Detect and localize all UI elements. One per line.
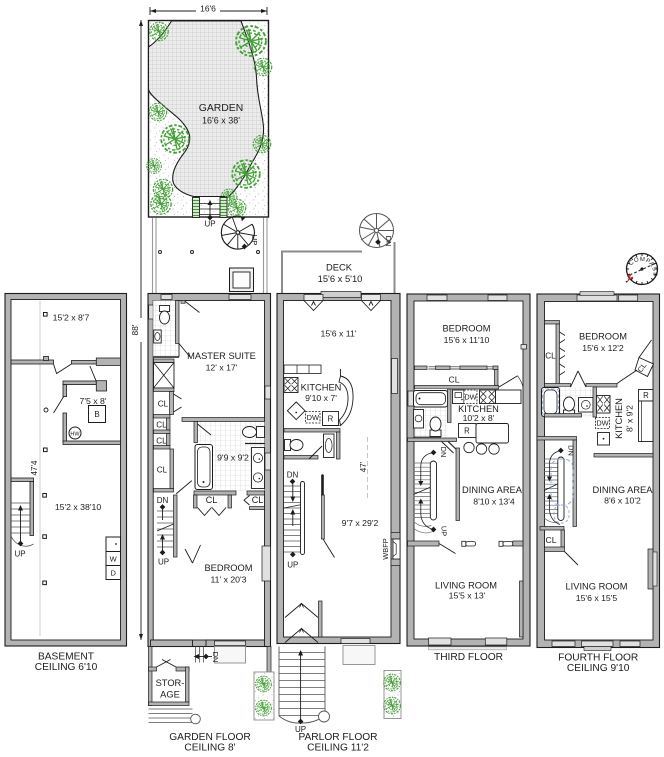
svg-text:DW: DW [596, 419, 608, 428]
svg-text:11' x 20'3: 11' x 20'3 [210, 575, 246, 585]
svg-text:GARDEN: GARDEN [199, 103, 243, 114]
svg-text:CL: CL [158, 400, 169, 409]
svg-text:15'6 x 5'10: 15'6 x 5'10 [318, 273, 363, 284]
svg-text:15'6 x 15'5: 15'6 x 15'5 [576, 593, 618, 603]
svg-text:CL: CL [156, 421, 167, 430]
svg-text:16'6 x 38': 16'6 x 38' [202, 116, 240, 126]
svg-text:8'6 x 10'2: 8'6 x 10'2 [604, 496, 641, 506]
svg-text:47': 47' [359, 461, 368, 472]
svg-text:CL: CL [545, 352, 556, 361]
svg-text:15'2 x 8'7: 15'2 x 8'7 [53, 313, 90, 323]
svg-text:DN: DN [384, 236, 393, 247]
svg-text:BASEMENT: BASEMENT [38, 652, 94, 663]
svg-text:BEDROOM: BEDROOM [579, 332, 627, 342]
svg-text:AGE: AGE [160, 690, 180, 700]
svg-text:DN: DN [439, 447, 448, 458]
svg-text:DW: DW [307, 413, 319, 422]
svg-text:B: B [94, 410, 99, 419]
svg-text:12' x 17': 12' x 17' [206, 363, 238, 373]
svg-text:CEILING 11'2: CEILING 11'2 [307, 743, 369, 753]
svg-text:R: R [643, 391, 649, 400]
svg-text:CL: CL [252, 495, 264, 505]
svg-text:CEILING 8': CEILING 8' [184, 743, 235, 753]
svg-text:9'10 x 7': 9'10 x 7' [305, 393, 337, 403]
svg-text:UP: UP [250, 235, 259, 245]
svg-text:UP: UP [158, 558, 169, 567]
svg-text:MASTER SUITE: MASTER SUITE [187, 351, 256, 361]
svg-text:CEILING 9'10: CEILING 9'10 [567, 663, 630, 674]
svg-text:LIVING ROOM: LIVING ROOM [435, 581, 497, 591]
svg-text:KITCHEN: KITCHEN [614, 398, 624, 439]
svg-text:R: R [464, 427, 470, 436]
svg-text:15'5 x 13': 15'5 x 13' [449, 591, 486, 601]
svg-text:WBFP: WBFP [381, 538, 390, 559]
svg-text:9'7 x 29'2: 9'7 x 29'2 [342, 518, 379, 528]
svg-text:BEDROOM: BEDROOM [204, 563, 252, 573]
svg-text:D: D [110, 569, 116, 578]
svg-text:9'9 x 9'2: 9'9 x 9'2 [217, 453, 249, 463]
svg-text:DN: DN [567, 445, 576, 456]
svg-text:CL: CL [449, 375, 460, 385]
svg-text:FOURTH FLOOR: FOURTH FLOOR [558, 653, 638, 664]
svg-text:10'2 x 8': 10'2 x 8' [463, 413, 495, 423]
svg-text:CL: CL [546, 535, 557, 545]
svg-text:15'6 x 11'10: 15'6 x 11'10 [444, 335, 490, 345]
svg-text:UP: UP [14, 550, 25, 559]
svg-text:UP: UP [204, 220, 215, 229]
svg-text:CL: CL [206, 495, 218, 505]
svg-text:DN: DN [211, 652, 220, 663]
svg-text:BEDROOM: BEDROOM [442, 324, 490, 334]
svg-text:15'2 x 38'10: 15'2 x 38'10 [55, 502, 101, 512]
svg-text:LIVING ROOM: LIVING ROOM [566, 582, 628, 592]
svg-text:GARDEN FLOOR: GARDEN FLOOR [169, 732, 251, 743]
svg-text:HW: HW [70, 432, 80, 438]
svg-text:CL: CL [156, 437, 167, 446]
svg-text:8' x 9'2: 8' x 9'2 [625, 405, 635, 432]
svg-text:15'6 x 12'2: 15'6 x 12'2 [582, 343, 624, 353]
svg-text:8'10 x 13'4: 8'10 x 13'4 [473, 497, 515, 507]
svg-text:W: W [110, 555, 118, 564]
svg-text:15'6 x 11': 15'6 x 11' [320, 329, 356, 339]
svg-text:DN: DN [287, 471, 299, 480]
svg-text:CL: CL [157, 466, 168, 475]
svg-text:R: R [328, 415, 334, 424]
svg-text:UP: UP [440, 526, 449, 536]
svg-text:47'4: 47'4 [30, 460, 39, 475]
svg-text:CEILING 6'10: CEILING 6'10 [35, 662, 98, 673]
svg-text:PARLOR FLOOR: PARLOR FLOOR [298, 732, 377, 743]
svg-text:DINING AREA: DINING AREA [593, 485, 654, 495]
svg-text:KITCHEN: KITCHEN [301, 383, 342, 393]
svg-text:7'5 x 8': 7'5 x 8' [80, 396, 107, 406]
svg-text:88': 88' [130, 324, 140, 335]
svg-text:THIRD FLOOR: THIRD FLOOR [434, 652, 503, 663]
svg-text:DINING AREA: DINING AREA [462, 485, 523, 495]
svg-text:DECK: DECK [326, 262, 353, 273]
svg-text:STOR-: STOR- [156, 678, 185, 688]
svg-text:UP: UP [287, 561, 298, 570]
svg-text:16'6: 16'6 [200, 4, 216, 14]
svg-text:DW: DW [464, 393, 476, 402]
svg-text:DN: DN [157, 496, 169, 505]
